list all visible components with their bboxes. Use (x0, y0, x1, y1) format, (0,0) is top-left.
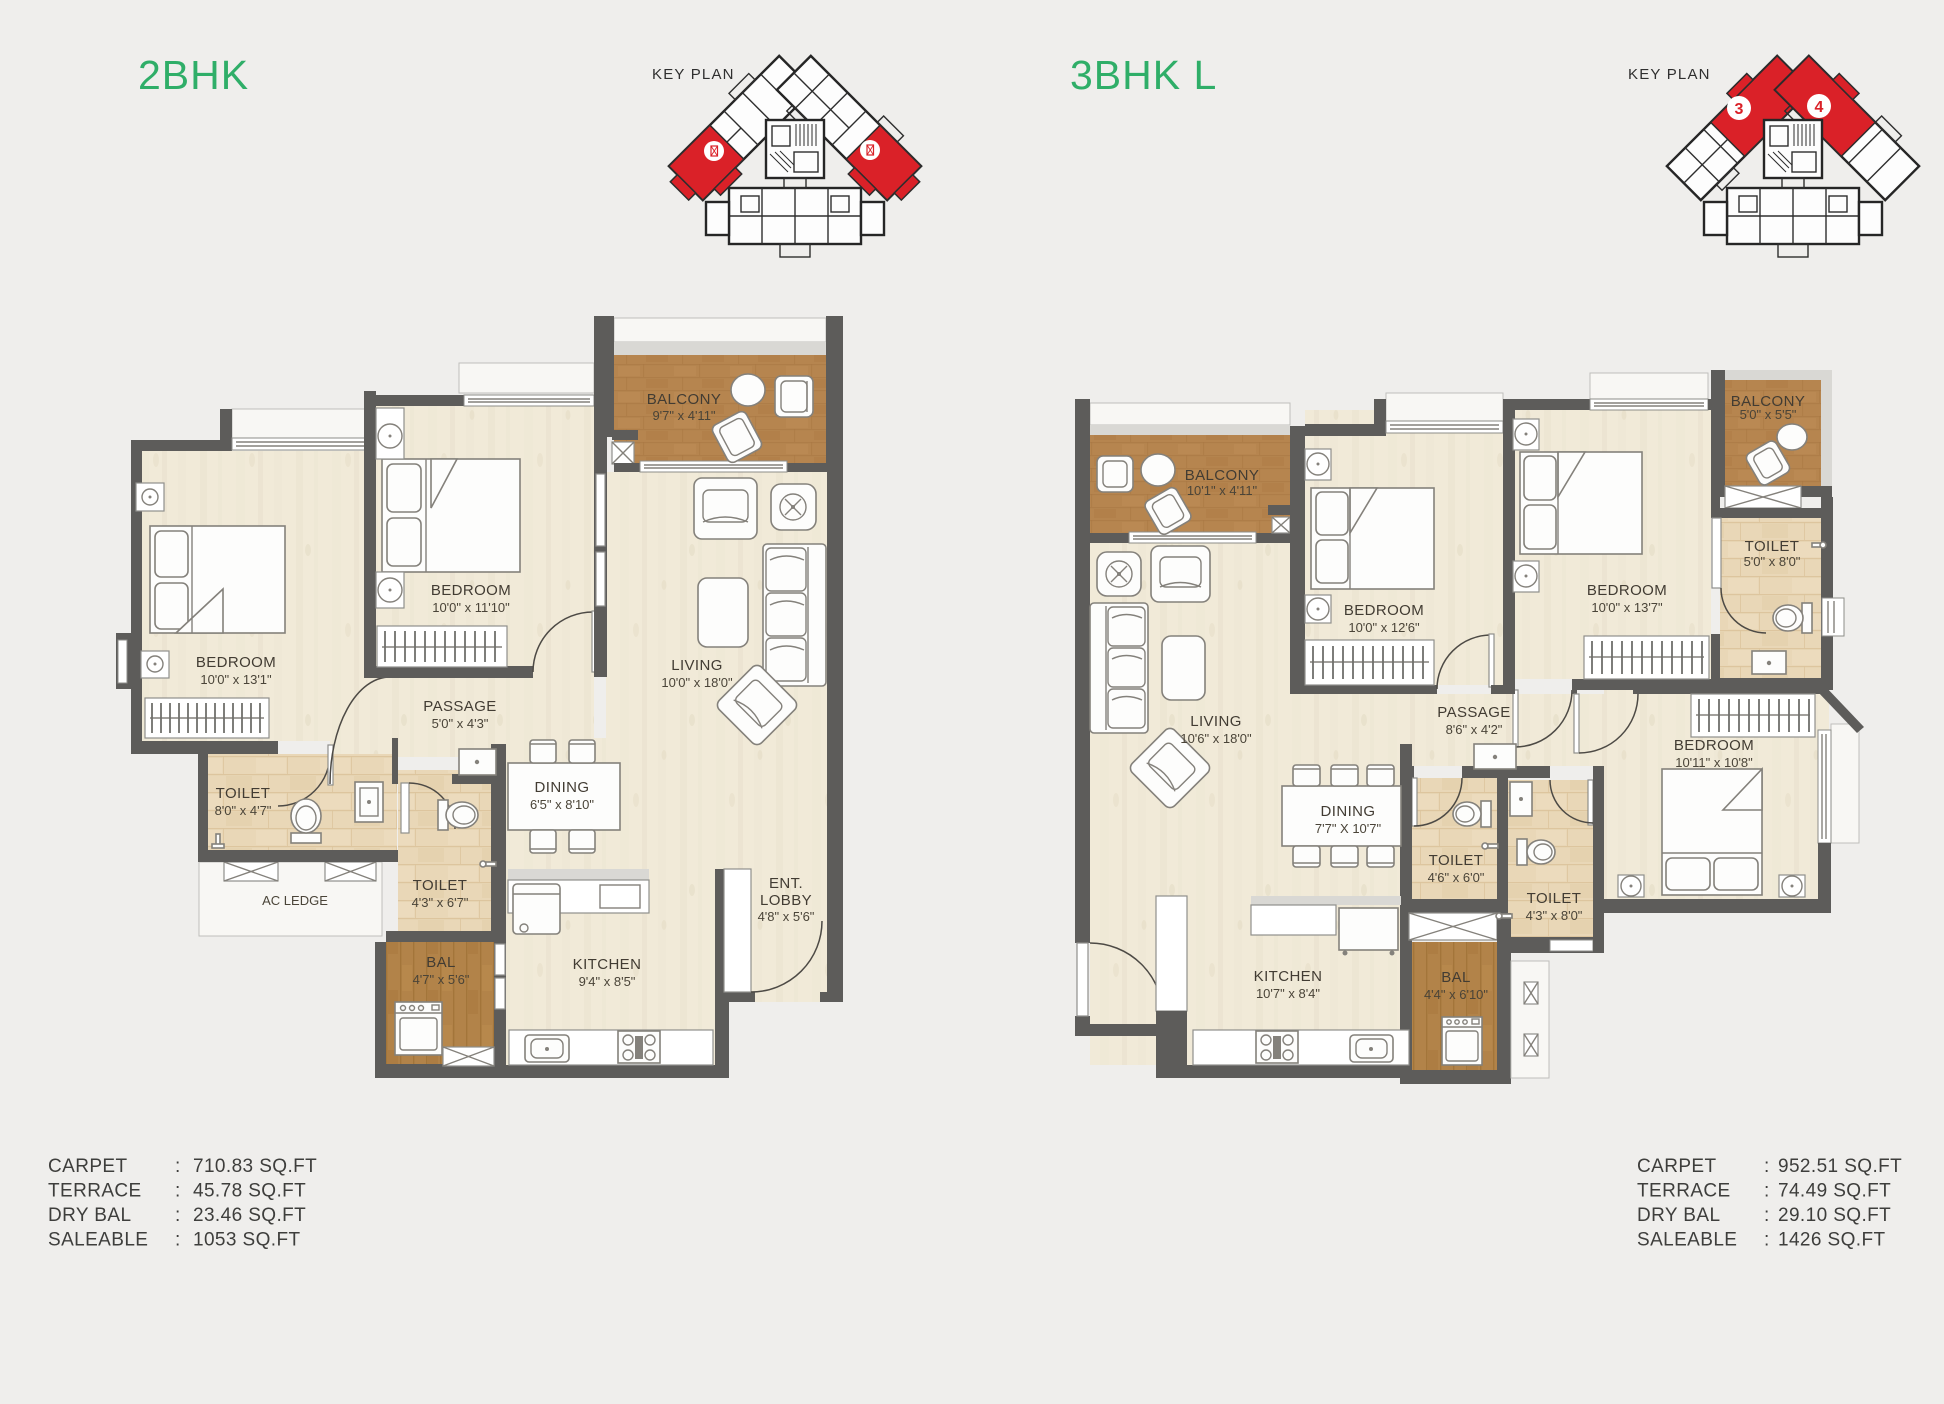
svg-text:CARPET: CARPET (1637, 1156, 1716, 1177)
svg-text:KEY PLAN: KEY PLAN (652, 66, 735, 83)
svg-text:LIVING: LIVING (671, 657, 723, 674)
svg-text:BEDROOM: BEDROOM (196, 654, 276, 671)
svg-text:DRY BAL: DRY BAL (1637, 1205, 1720, 1226)
svg-text::: : (175, 1156, 181, 1177)
svg-text:BEDROOM: BEDROOM (1344, 602, 1424, 619)
svg-text:CARPET: CARPET (48, 1156, 127, 1177)
svg-text:ENT.: ENT. (769, 875, 803, 892)
svg-text:3: 3 (1735, 101, 1744, 118)
svg-text:BAL: BAL (1441, 969, 1471, 986)
svg-text:6'5" x 8'10": 6'5" x 8'10" (530, 797, 594, 812)
svg-text:952.51 SQ.FT: 952.51 SQ.FT (1778, 1156, 1902, 1177)
svg-text:TOILET: TOILET (413, 877, 468, 894)
svg-text:5'0" x 8'0": 5'0" x 8'0" (1744, 554, 1801, 569)
svg-text:TOILET: TOILET (216, 785, 271, 802)
svg-text:BALCONY: BALCONY (1185, 467, 1260, 484)
svg-text:SALEABLE: SALEABLE (1637, 1230, 1737, 1251)
svg-text:710.83 SQ.FT: 710.83 SQ.FT (193, 1156, 317, 1177)
svg-text:7'7" X 10'7": 7'7" X 10'7" (1315, 821, 1382, 836)
svg-text:4'8" x 5'6": 4'8" x 5'6" (758, 909, 815, 924)
svg-text:3BHK L: 3BHK L (1070, 52, 1217, 98)
svg-text:KITCHEN: KITCHEN (573, 956, 642, 973)
svg-text:LIVING: LIVING (1190, 713, 1242, 730)
svg-text:10'0" x 11'10": 10'0" x 11'10" (432, 600, 510, 615)
svg-text::: : (1764, 1205, 1770, 1226)
svg-text:KITCHEN: KITCHEN (1254, 968, 1323, 985)
svg-text:PASSAGE: PASSAGE (423, 698, 496, 715)
svg-text:BEDROOM: BEDROOM (431, 582, 511, 599)
svg-text:4'7" x 5'6": 4'7" x 5'6" (413, 972, 470, 987)
svg-text::: : (175, 1181, 181, 1202)
svg-text:4'6" x 6'0": 4'6" x 6'0" (1428, 870, 1485, 885)
svg-text::: : (1764, 1230, 1770, 1251)
svg-text:2BHK: 2BHK (138, 52, 249, 98)
svg-text:10'1" x 4'11": 10'1" x 4'11" (1187, 483, 1258, 498)
svg-text:10'0" x 13'7": 10'0" x 13'7" (1591, 600, 1663, 615)
svg-text:4'3" x 6'7": 4'3" x 6'7" (412, 895, 469, 910)
svg-text:TOILET: TOILET (1745, 538, 1800, 555)
svg-text:10'6" x 18'0": 10'6" x 18'0" (1180, 731, 1252, 746)
svg-text:9'4" x 8'5": 9'4" x 8'5" (579, 974, 636, 989)
svg-text:8'0" x 4'7": 8'0" x 4'7" (215, 803, 272, 818)
svg-text:45.78 SQ.FT: 45.78 SQ.FT (193, 1181, 306, 1202)
svg-text:4: 4 (1815, 99, 1824, 116)
svg-text::: : (175, 1230, 181, 1251)
svg-text:29.10 SQ.FT: 29.10 SQ.FT (1778, 1205, 1891, 1226)
svg-text:10'0" x 18'0": 10'0" x 18'0" (661, 675, 733, 690)
svg-text:8'6" x 4'2": 8'6" x 4'2" (1446, 722, 1503, 737)
svg-text:AC LEDGE: AC LEDGE (262, 893, 328, 908)
svg-text:BAL: BAL (426, 954, 456, 971)
svg-text:LOBBY: LOBBY (760, 892, 812, 909)
svg-text:BEDROOM: BEDROOM (1587, 582, 1667, 599)
svg-text:TOILET: TOILET (1527, 890, 1582, 907)
svg-text:PASSAGE: PASSAGE (1437, 704, 1510, 721)
svg-text:4'4" x 6'10": 4'4" x 6'10" (1424, 987, 1488, 1002)
svg-text:10'11" x 10'8": 10'11" x 10'8" (1675, 755, 1753, 770)
svg-text:4'3" x 8'0": 4'3" x 8'0" (1526, 908, 1583, 923)
svg-text:KEY PLAN: KEY PLAN (1628, 66, 1711, 83)
svg-text:DINING: DINING (1321, 803, 1376, 820)
svg-text:9'7" x 4'11": 9'7" x 4'11" (652, 408, 715, 423)
svg-text:TOILET: TOILET (1429, 852, 1484, 869)
svg-text::: : (1764, 1181, 1770, 1202)
svg-text:SALEABLE: SALEABLE (48, 1230, 148, 1251)
svg-text::: : (175, 1205, 181, 1226)
svg-text:1053 SQ.FT: 1053 SQ.FT (193, 1230, 301, 1251)
svg-text:1426 SQ.FT: 1426 SQ.FT (1778, 1230, 1886, 1251)
svg-text:BEDROOM: BEDROOM (1674, 737, 1754, 754)
svg-text:23.46 SQ.FT: 23.46 SQ.FT (193, 1205, 306, 1226)
svg-text:BALCONY: BALCONY (647, 391, 722, 408)
svg-text:10'7" x 8'4": 10'7" x 8'4" (1256, 986, 1320, 1001)
svg-text:5'0" x 5'5": 5'0" x 5'5" (1740, 407, 1797, 422)
svg-text:TERRACE: TERRACE (1637, 1181, 1731, 1202)
svg-text:10'0" x 12'6": 10'0" x 12'6" (1348, 620, 1420, 635)
svg-text:5'0" x 4'3": 5'0" x 4'3" (432, 716, 489, 731)
svg-text:10'0" x 13'1": 10'0" x 13'1" (200, 672, 272, 687)
svg-text:DRY BAL: DRY BAL (48, 1205, 131, 1226)
svg-text:74.49 SQ.FT: 74.49 SQ.FT (1778, 1181, 1891, 1202)
svg-text:TERRACE: TERRACE (48, 1181, 142, 1202)
svg-text::: : (1764, 1156, 1770, 1177)
svg-text:DINING: DINING (535, 779, 590, 796)
